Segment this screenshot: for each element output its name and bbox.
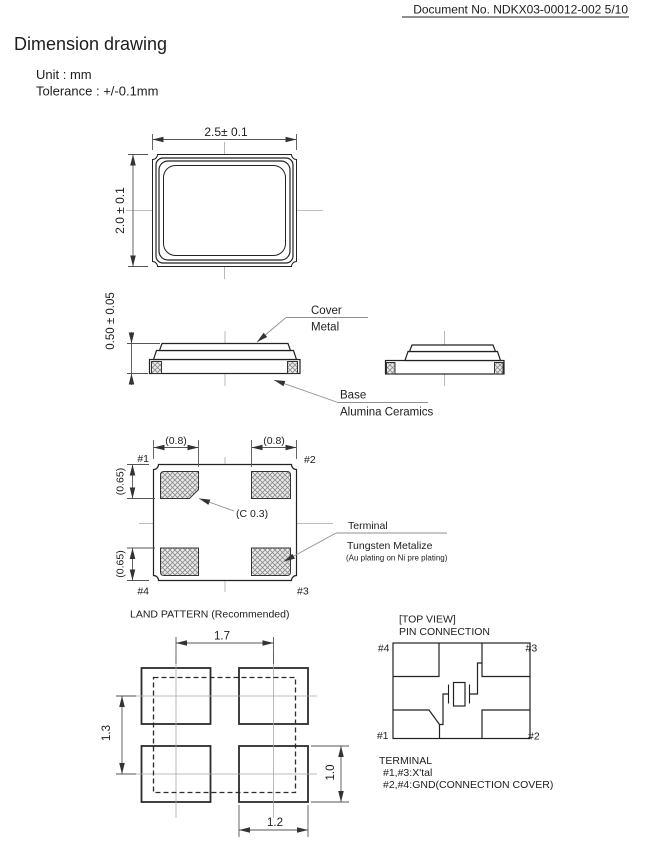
pin-label-4: #4 — [378, 643, 390, 655]
tolerance-note: Tolerance : +/-0.1mm — [36, 84, 158, 99]
terminal-pad-2 — [252, 472, 291, 499]
terminal-label: Terminal — [348, 520, 388, 532]
pin-connection-heading-2: PIN CONNECTION — [399, 626, 490, 638]
width-dimension: 2.5± 0.1 — [204, 125, 248, 139]
pad-height-dimension: 1.0 — [325, 765, 337, 781]
land-pattern-caption: LAND PATTERN (Recommended) — [130, 609, 289, 621]
pin-label-1: #1 — [137, 453, 149, 465]
chamfer-dimension: (C 0.3) — [236, 508, 268, 520]
pad-width-dimension-right: (0.8) — [263, 435, 285, 447]
terminal-line-2: #2,#4:GND(CONNECTION COVER) — [383, 779, 553, 791]
corner-pad-3 — [482, 643, 530, 677]
terminal-plating-note: (Au plating on Ni pre plating) — [346, 554, 448, 563]
base-label: Base — [340, 390, 366, 402]
cover-label: Cover — [311, 305, 342, 317]
pin-label-2: #2 — [304, 454, 316, 466]
drawing-canvas: Document No. NDKX03-00012-002 5/10 Dimen… — [0, 0, 653, 841]
document-number: Document No. NDKX03-00012-002 5/10 — [413, 3, 628, 17]
terminal-pad-3 — [252, 548, 291, 576]
terminal-pad — [387, 363, 396, 375]
unit-note: Unit : mm — [36, 67, 92, 82]
pin-connection-heading-1: [TOP VIEW] — [399, 614, 456, 626]
cover-band-upper — [410, 345, 496, 352]
crystal-symbol — [454, 683, 466, 707]
cover-top-face — [164, 166, 286, 256]
side-view-front: 0.50 ± 0.05 Cover Metal Base Alumina Cer… — [105, 292, 434, 418]
pad-width-dimension: 1.2 — [267, 817, 283, 829]
leader-line — [257, 318, 286, 343]
terminal-pad-4 — [161, 548, 199, 576]
corner-pad-2 — [482, 710, 530, 739]
document-header: Document No. NDKX03-00012-002 5/10 — [402, 3, 629, 18]
terminal-title: TERMINAL — [379, 755, 432, 767]
pin-label-4: #4 — [137, 586, 149, 598]
cover-band-upper — [160, 344, 291, 351]
pin-label-3: #3 — [526, 643, 538, 655]
pin-label-2: #2 — [528, 731, 540, 743]
terminal-pad — [495, 363, 504, 375]
leader-line — [274, 380, 338, 403]
corner-pad-1 — [393, 710, 440, 739]
terminal-pad — [152, 362, 162, 374]
ceramic-base — [150, 360, 301, 374]
cover-material-label: Metal — [311, 322, 339, 334]
terminal-view: (0.8) (0.8) (0.65) (0.65) (C 0.3) #1 #2 … — [115, 435, 448, 598]
pin-label-1: #1 — [377, 730, 389, 742]
terminal-pad — [288, 362, 298, 374]
terminal-line-1: #1,#3:X'tal — [383, 767, 432, 779]
page-title: Dimension drawing — [14, 34, 167, 54]
pin-connection: [TOP VIEW] PIN CONNECTION #4 #3 #1 #2 TE… — [377, 614, 554, 792]
pitch-y-dimension: 1.3 — [101, 725, 113, 741]
crystal-wire-left — [440, 694, 449, 725]
crystal-wire-right — [470, 663, 483, 694]
terminal-pad-1 — [161, 472, 199, 499]
land-pattern: LAND PATTERN (Recommended) 1.7 1.3 1.0 1… — [101, 609, 349, 838]
pin-label-3: #3 — [297, 586, 309, 598]
pad-height-dimension-bottom: (0.65) — [115, 550, 127, 577]
cover-band-lower — [154, 351, 297, 360]
cover-band-lower — [405, 352, 501, 361]
side-view-right — [386, 331, 505, 386]
pitch-x-dimension: 1.7 — [214, 631, 230, 643]
top-view: 2.5± 0.1 2.0 ± 0.1 — [113, 125, 323, 279]
terminal-material-label: Tungsten Metalize — [347, 540, 433, 552]
base-material-label: Alumina Ceramics — [340, 407, 434, 419]
pad-width-dimension-left: (0.8) — [165, 435, 187, 447]
pad-height-dimension-top: (0.65) — [115, 468, 127, 495]
thickness-dimension: 0.50 ± 0.05 — [105, 292, 117, 349]
height-dimension: 2.0 ± 0.1 — [113, 187, 127, 234]
corner-pad-4 — [393, 643, 439, 677]
dimension-drawing-page: Document No. NDKX03-00012-002 5/10 Dimen… — [0, 0, 653, 841]
ceramic-base — [386, 361, 505, 375]
